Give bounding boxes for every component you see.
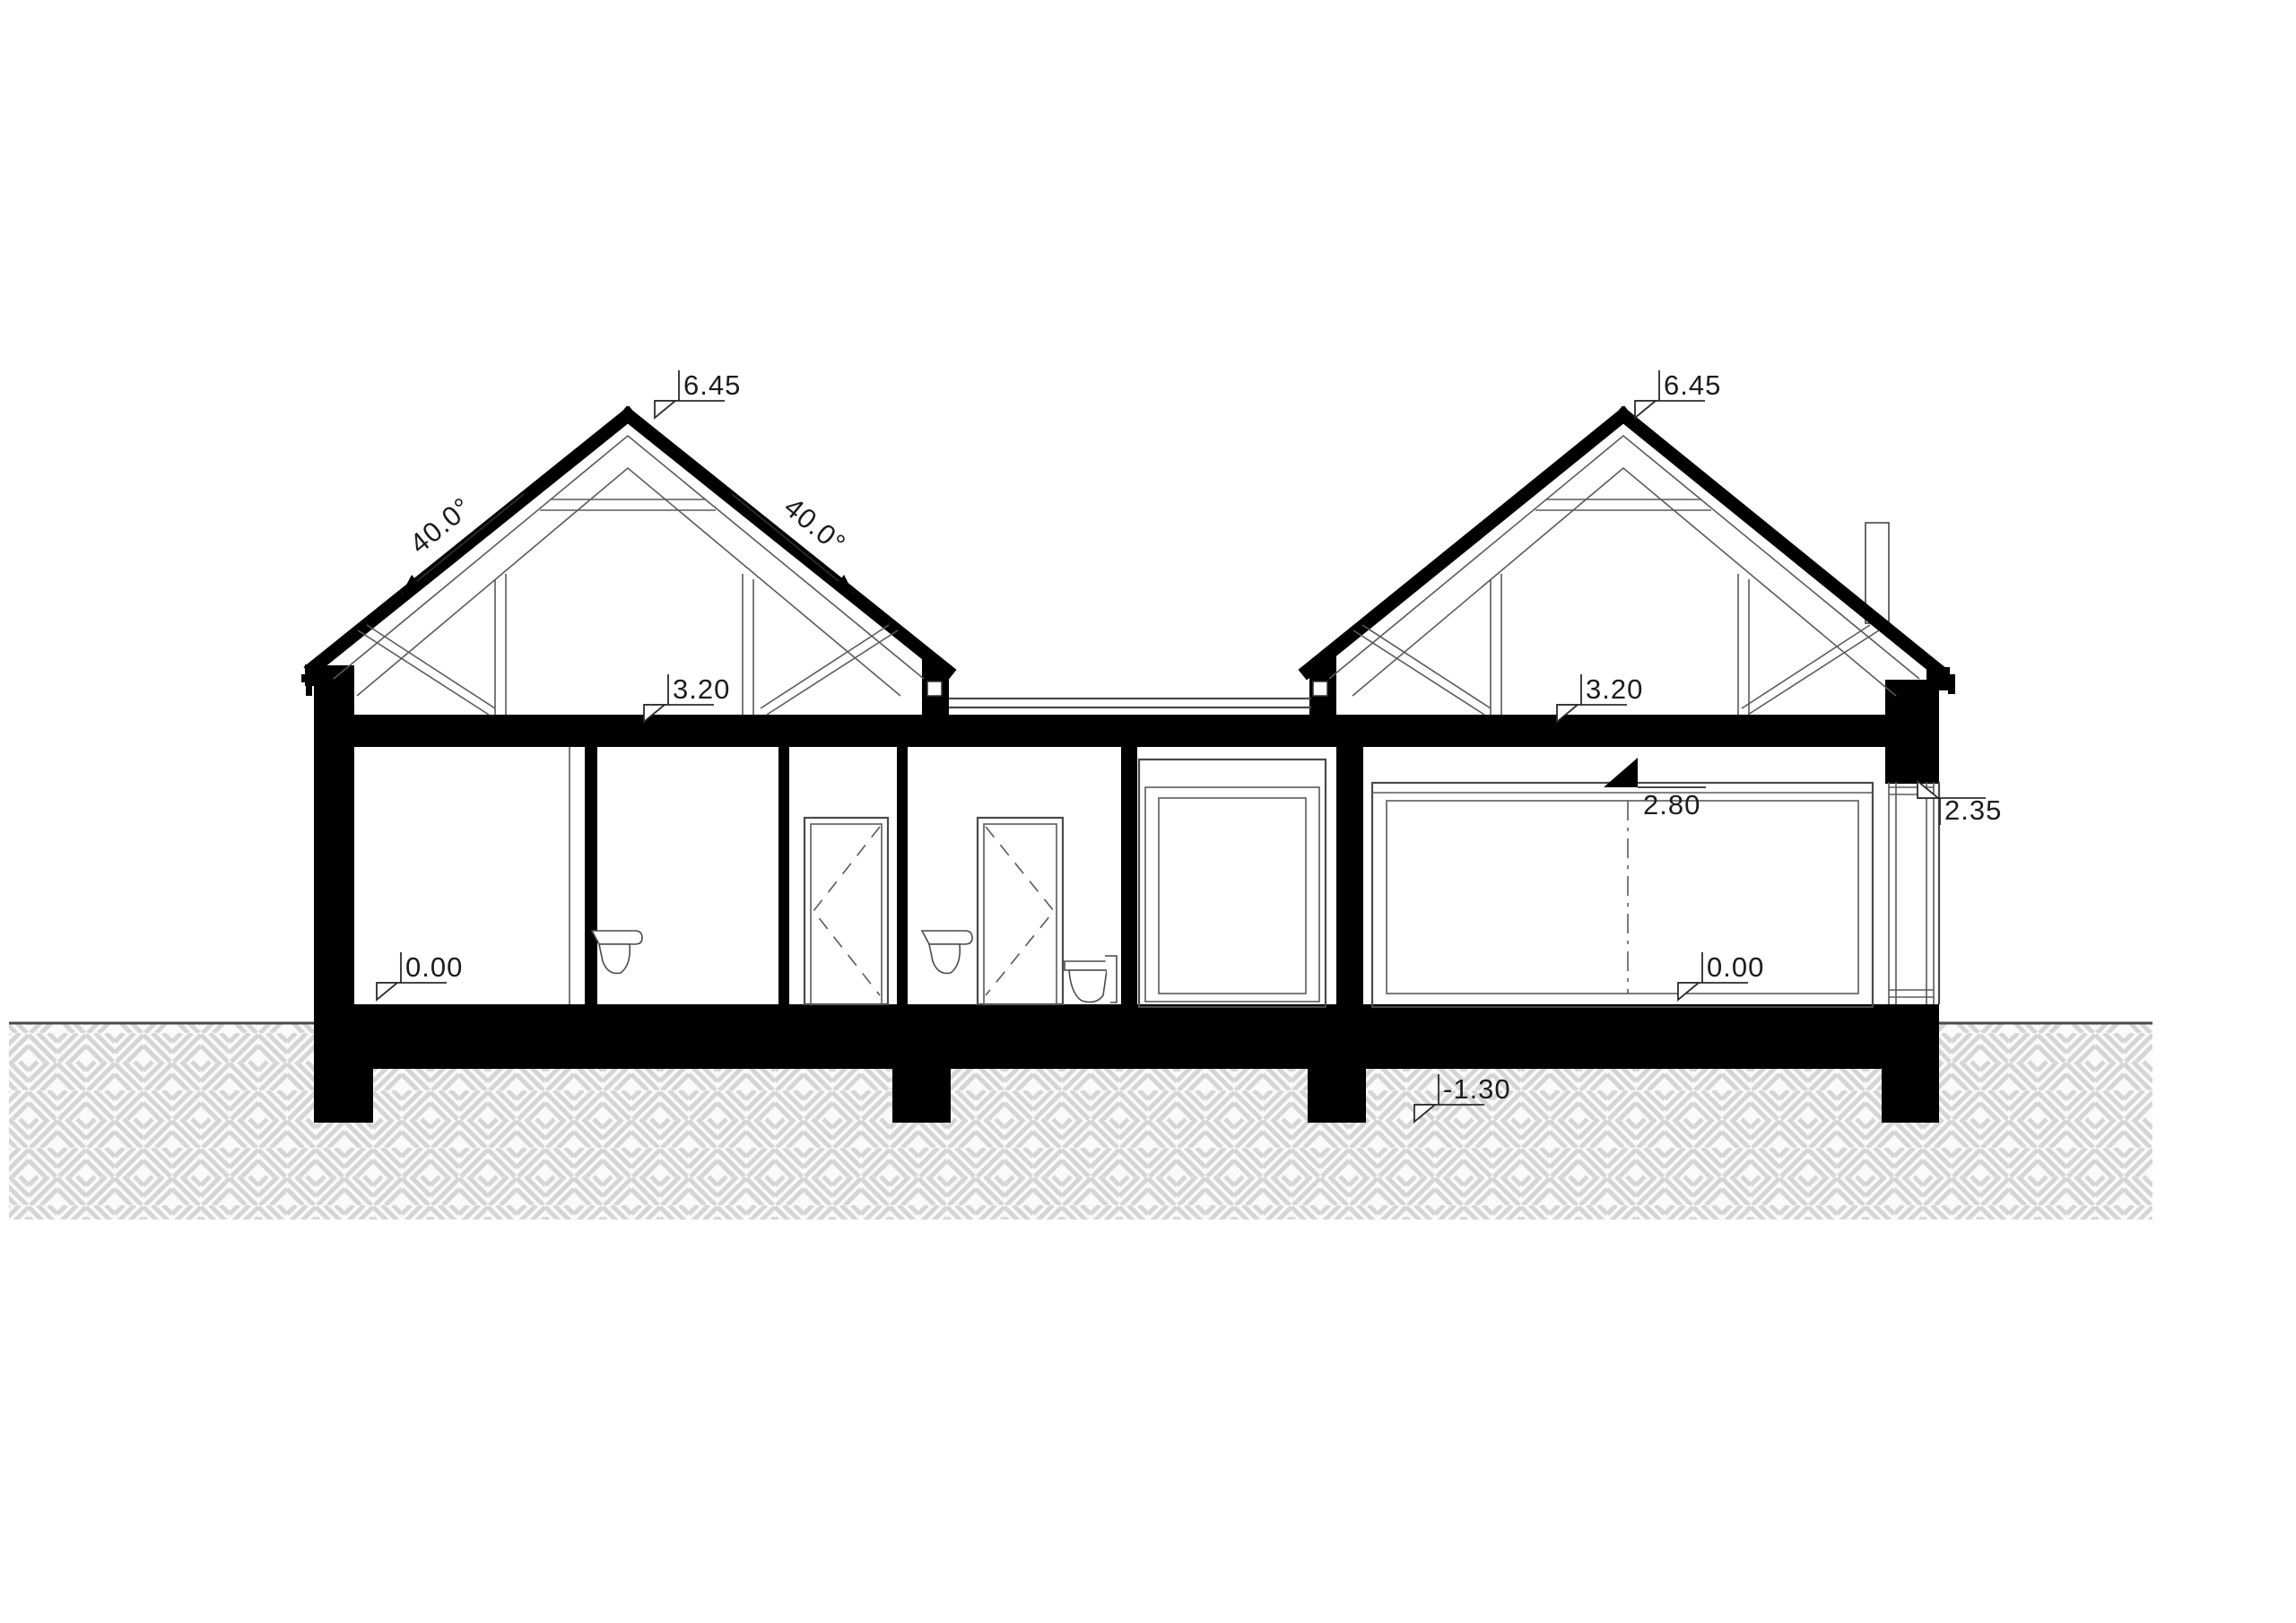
floor-slab	[314, 1004, 1939, 1069]
partition-a	[585, 747, 597, 1004]
partition-b	[778, 747, 789, 1004]
partition-d	[1121, 747, 1137, 1004]
level-marker-peak-right: 6.45	[1635, 369, 1721, 418]
ceiling-slab	[354, 715, 1885, 747]
dimension-label-peak-right: 6.45	[1664, 369, 1721, 401]
wall-right-upper	[1885, 680, 1939, 784]
right-wall-window	[1889, 782, 1939, 1004]
footing-mid-right	[1308, 1067, 1366, 1123]
gutter-right	[1948, 674, 1955, 694]
dimension-label-peak-left: 6.45	[683, 369, 741, 401]
dimension-label-lintel: 2.80	[1643, 789, 1700, 820]
dimension-label-ceiling-right: 3.20	[1586, 673, 1643, 705]
sliding-window	[1372, 783, 1873, 1007]
partition-c	[897, 747, 908, 1004]
footing-right	[1882, 1067, 1939, 1123]
roof-right-west-slope	[1308, 415, 1623, 671]
toilet	[1065, 956, 1117, 1002]
door-c	[978, 818, 1063, 1004]
flat-roof	[949, 699, 1311, 707]
level-marker-floor-left: 0.00	[377, 951, 463, 1000]
dimension-label-foundation: -1.30	[1443, 1073, 1511, 1105]
washbasin-2	[922, 931, 972, 973]
footing-left	[314, 1067, 373, 1123]
dimension-label-floor-left: 0.00	[405, 951, 463, 983]
level-marker-lintel: 2.80	[1604, 758, 1706, 820]
wall-mid-right	[1336, 747, 1363, 1004]
dimension-label-window-head: 2.35	[1944, 794, 2002, 826]
section-drawing-canvas: 6.45 6.45 40.0° 40.0° 3.20 3.20 2.80	[0, 0, 2296, 1623]
roof-right-east-slope	[1623, 415, 1941, 673]
patio-window	[1139, 759, 1326, 1007]
purlin-right	[1313, 681, 1327, 696]
dimension-label-ceiling-left: 3.20	[673, 673, 730, 705]
level-marker-ceiling-left: 3.20	[644, 673, 730, 722]
footing-mid-left	[892, 1067, 951, 1123]
wall-left-exterior	[314, 665, 354, 1006]
level-marker-ceiling-right: 3.20	[1557, 673, 1643, 722]
level-marker-floor-right: 0.00	[1678, 951, 1764, 1000]
door-b	[804, 818, 888, 1004]
purlin-left	[927, 681, 942, 696]
washbasin-1	[592, 931, 642, 973]
dimension-label-floor-right: 0.00	[1707, 951, 1764, 983]
roof-left-east-slope	[628, 415, 947, 671]
house-cross-section: 6.45 6.45 40.0° 40.0° 3.20 3.20 2.80	[0, 0, 2296, 1623]
roof-left-west-slope	[313, 415, 628, 668]
structure-cut	[301, 649, 1955, 1123]
roofs	[313, 415, 1941, 673]
level-marker-peak-left: 6.45	[655, 369, 741, 418]
